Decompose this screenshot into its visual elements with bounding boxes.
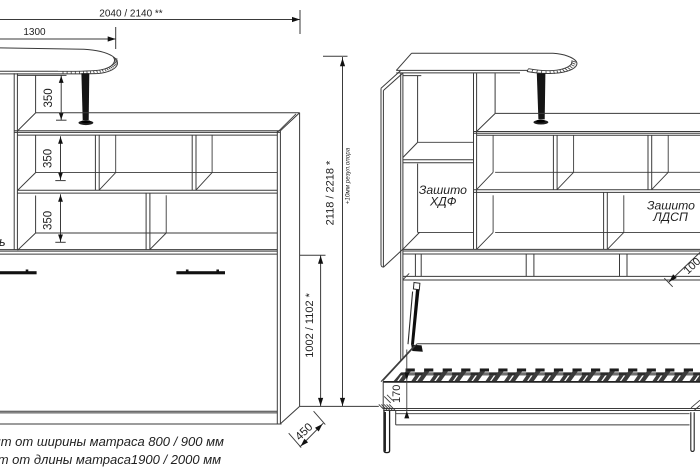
svg-text:350: 350	[43, 88, 55, 107]
svg-text:ХДФ: ХДФ	[429, 194, 457, 208]
svg-text:ит от длины матраса1900 / 2000: ит от длины матраса1900 / 2000 мм	[0, 452, 221, 467]
svg-text:1002 / 1102 *: 1002 / 1102 *	[304, 292, 316, 357]
svg-text:ит от ширины матраса 800 / 900: ит от ширины матраса 800 / 900 мм	[0, 434, 224, 449]
svg-text:ЛДСП: ЛДСП	[652, 210, 688, 224]
svg-text:170: 170	[391, 385, 403, 403]
svg-text:1300: 1300	[23, 27, 46, 38]
svg-text:2118 / 2218 *: 2118 / 2218 *	[325, 160, 337, 225]
svg-text:350: 350	[42, 149, 54, 168]
svg-text:ь: ь	[0, 235, 6, 249]
svg-text:350: 350	[42, 211, 54, 230]
svg-text:+10мм резул.опора: +10мм резул.опора	[344, 147, 351, 204]
svg-text:2040 / 2140 **: 2040 / 2140 **	[99, 9, 162, 20]
